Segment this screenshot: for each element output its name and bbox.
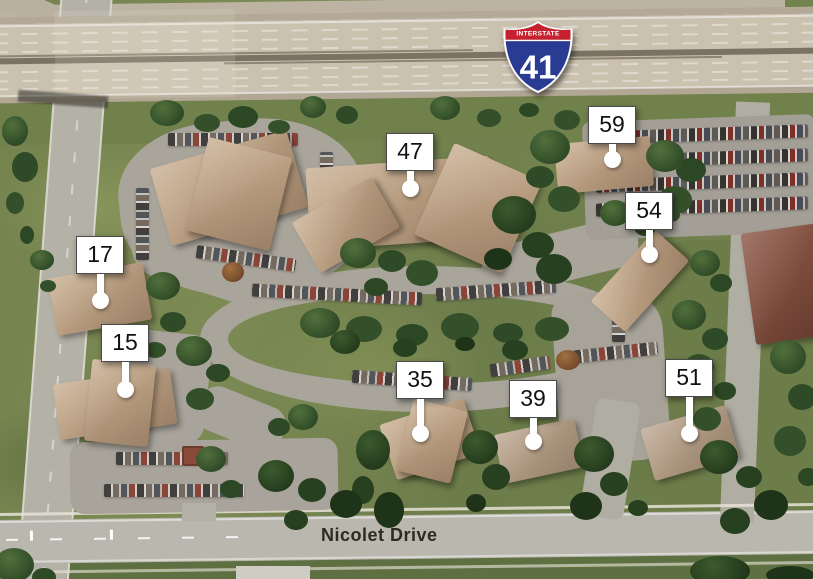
marker-dot <box>402 180 419 197</box>
turn-arrow-marking <box>110 530 113 540</box>
center-dash-line <box>6 536 256 541</box>
tree-cluster <box>430 96 460 120</box>
car-row <box>136 188 149 260</box>
tree-cluster <box>462 430 498 464</box>
shield-number: 41 <box>520 50 557 87</box>
marker-stem <box>646 230 653 248</box>
tree-cluster <box>356 430 390 470</box>
marker-stem <box>417 399 424 427</box>
tree-cluster <box>300 96 326 118</box>
tree-cluster <box>330 330 360 354</box>
marker-label: 47 <box>386 133 434 171</box>
tree-cluster <box>340 238 376 268</box>
tree-cluster <box>258 460 294 492</box>
tree-cluster <box>146 272 180 300</box>
tree-cluster <box>690 250 720 276</box>
building-marker-35[interactable]: 35 <box>396 361 444 442</box>
building-marker-47[interactable]: 47 <box>386 133 434 197</box>
marker-dot <box>604 151 621 168</box>
building-marker-17[interactable]: 17 <box>76 236 124 309</box>
tree-cluster <box>288 404 318 430</box>
marker-stem <box>122 362 129 383</box>
tree-cluster <box>530 130 570 164</box>
marker-dot <box>92 292 109 309</box>
marker-dot <box>412 425 429 442</box>
interstate-41-shield: INTERSTATE 41 <box>502 20 574 94</box>
tree-cluster <box>2 116 28 146</box>
tree-cluster <box>176 336 212 366</box>
tree-cluster <box>700 440 738 474</box>
marker-label: 17 <box>76 236 124 274</box>
tree-cluster <box>646 140 684 172</box>
marker-dot <box>681 425 698 442</box>
shield-top-text: INTERSTATE <box>516 30 560 37</box>
building-marker-51[interactable]: 51 <box>665 359 713 442</box>
building-marker-54[interactable]: 54 <box>625 192 673 263</box>
marker-label: 54 <box>625 192 673 230</box>
marker-label: 59 <box>588 106 636 144</box>
rust-tree <box>222 262 244 282</box>
overpass-bridge-deck <box>54 9 235 99</box>
marker-dot <box>117 381 134 398</box>
car-row <box>104 484 244 497</box>
marker-stem <box>686 397 693 427</box>
tree-cluster <box>196 446 226 472</box>
street-label-nicolet-drive: Nicolet Drive <box>321 525 438 546</box>
aerial-map: INTERSTATE 41 Nicolet Drive 17 15 47 59 … <box>0 0 813 579</box>
marker-label: 15 <box>101 324 149 362</box>
driveway-southwest <box>182 503 216 521</box>
building-marker-15[interactable]: 15 <box>101 324 149 398</box>
building-roof-bottom-edge <box>236 566 310 579</box>
turn-arrow-marking <box>30 531 33 541</box>
tree-cluster <box>30 250 54 270</box>
tree-cluster <box>492 196 536 234</box>
building-marker-59[interactable]: 59 <box>588 106 636 168</box>
marker-label: 39 <box>509 380 557 418</box>
marker-label: 51 <box>665 359 713 397</box>
tree-cluster <box>770 340 806 374</box>
rust-tree <box>556 350 580 370</box>
marker-stem <box>97 274 104 294</box>
tree-cluster <box>150 100 184 126</box>
marker-dot <box>525 433 542 450</box>
tree-cluster <box>574 436 614 472</box>
marker-dot <box>641 246 658 263</box>
building-marker-39[interactable]: 39 <box>509 380 557 450</box>
marker-label: 35 <box>396 361 444 399</box>
tree-cluster <box>672 300 706 330</box>
tree-cluster <box>690 556 750 579</box>
